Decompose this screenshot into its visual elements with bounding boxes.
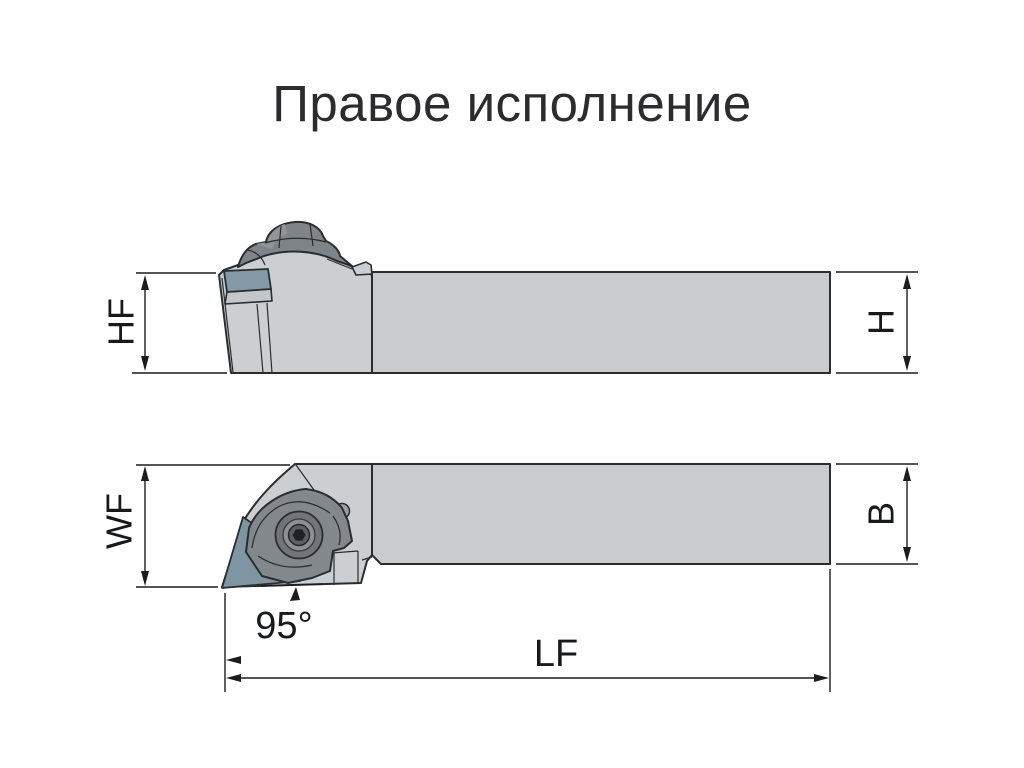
technical-drawing: HF H WF [0, 0, 1024, 768]
lf-extension-lines [225, 569, 830, 692]
side-insert [224, 269, 271, 292]
wf-arrow-up [141, 466, 149, 481]
wf-arrow-down [141, 571, 149, 586]
hf-label: HF [101, 298, 142, 346]
lf-arrow-right [814, 674, 829, 682]
clamp-screw [276, 512, 323, 559]
b-arrow-up [903, 466, 911, 481]
wf-label: WF [99, 493, 140, 549]
angle-label: 95° [255, 605, 312, 647]
h-label: H [861, 309, 902, 335]
side-tab [352, 262, 372, 275]
b-label: B [861, 502, 902, 526]
side-view: HF H [101, 222, 919, 373]
h-arrow-up [903, 274, 911, 289]
side-head [219, 248, 372, 373]
angle-arrow-left [226, 656, 241, 664]
b-arrow-down [903, 547, 911, 562]
h-arrow-down [903, 356, 911, 371]
hf-arrow-up [141, 275, 149, 290]
top-view: WF B 95° LF [99, 464, 919, 692]
lf-arrow-left [226, 674, 241, 682]
hf-arrow-down [141, 356, 149, 371]
lf-label: LF [534, 633, 578, 675]
top-shank [372, 464, 830, 564]
angle-arrow-up [290, 587, 300, 601]
side-shank [372, 272, 830, 373]
